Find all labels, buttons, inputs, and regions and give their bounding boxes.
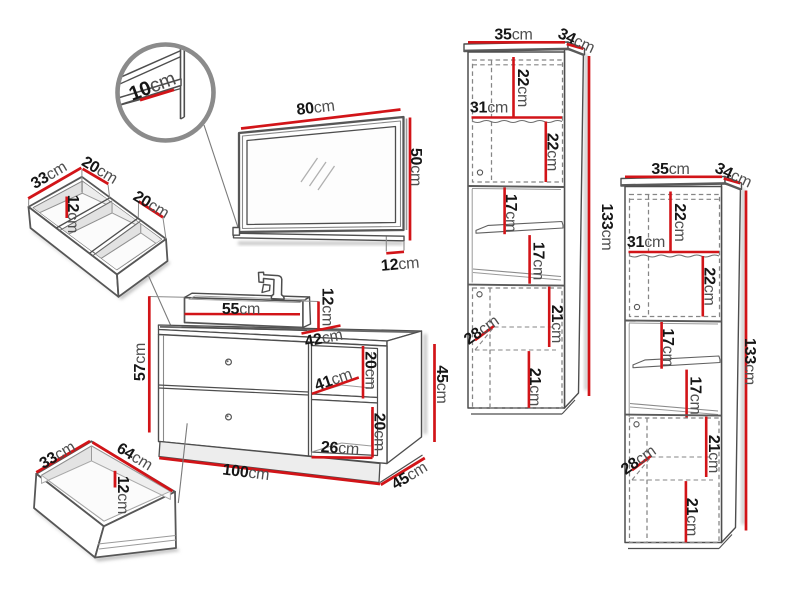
- svg-text:22cm: 22cm: [701, 267, 718, 305]
- svg-text:50cm: 50cm: [407, 148, 424, 186]
- svg-text:20cm: 20cm: [362, 351, 379, 389]
- svg-text:12cm: 12cm: [319, 288, 336, 326]
- svg-text:21cm: 21cm: [683, 498, 700, 536]
- svg-text:12cm: 12cm: [380, 255, 420, 275]
- svg-text:21cm: 21cm: [526, 368, 543, 406]
- svg-text:12cm: 12cm: [114, 476, 131, 514]
- svg-text:35cm: 35cm: [651, 161, 689, 178]
- svg-text:133cm: 133cm: [598, 203, 615, 250]
- svg-text:22cm: 22cm: [514, 69, 531, 107]
- svg-text:22cm: 22cm: [544, 133, 561, 171]
- svg-text:17cm: 17cm: [687, 376, 704, 414]
- svg-text:20cm: 20cm: [371, 413, 388, 451]
- svg-text:31cm: 31cm: [470, 99, 508, 116]
- svg-text:21cm: 21cm: [705, 435, 722, 473]
- svg-text:133cm: 133cm: [741, 338, 758, 385]
- svg-text:55cm: 55cm: [222, 301, 260, 318]
- svg-text:17cm: 17cm: [530, 242, 547, 280]
- svg-text:57cm: 57cm: [132, 343, 149, 381]
- svg-text:35cm: 35cm: [494, 26, 532, 43]
- svg-text:31cm: 31cm: [627, 234, 665, 251]
- svg-text:17cm: 17cm: [659, 328, 676, 366]
- svg-text:17cm: 17cm: [502, 194, 519, 232]
- svg-text:26cm: 26cm: [320, 439, 359, 459]
- svg-text:21cm: 21cm: [548, 305, 565, 343]
- svg-text:12cm: 12cm: [64, 195, 81, 233]
- svg-text:22cm: 22cm: [671, 203, 688, 241]
- svg-text:45cm: 45cm: [433, 365, 450, 403]
